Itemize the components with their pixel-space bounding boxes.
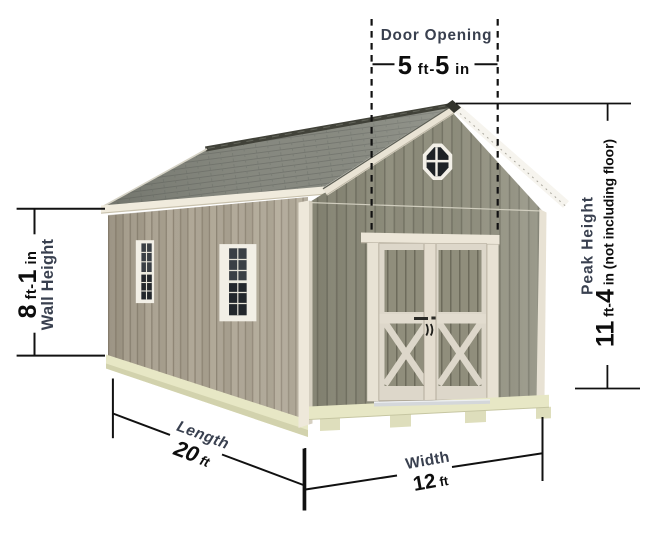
svg-text:Door Opening: Door Opening	[381, 27, 493, 44]
svg-text:Wall Height: Wall Height	[39, 238, 57, 330]
svg-text:Peak Height: Peak Height	[580, 196, 597, 295]
